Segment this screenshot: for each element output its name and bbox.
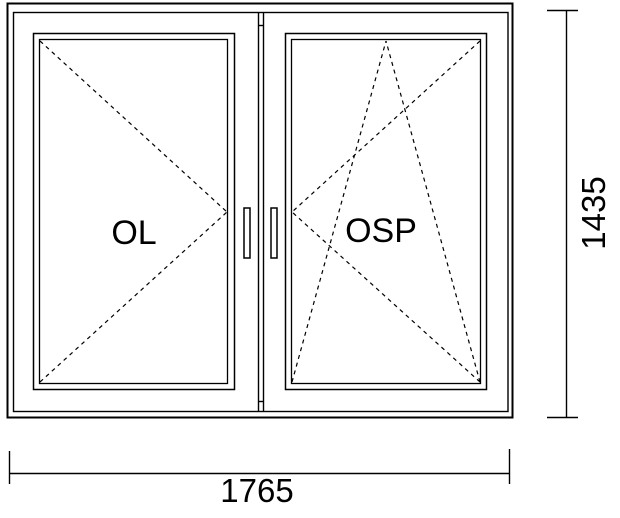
height-dimension-value: 1435 (575, 176, 612, 249)
right-sash-handle (271, 208, 277, 258)
window-drawing-canvas: OL OSP 1765 (0, 0, 620, 518)
right-panel-label: OSP (345, 212, 417, 250)
left-sash-glass-line (40, 40, 228, 384)
panel-left-sash[interactable]: OL (34, 34, 235, 390)
turn-left-opening-symbol (40, 41, 227, 382)
left-panel-label: OL (111, 214, 156, 252)
window-frame (8, 4, 513, 418)
frame-inner-line (14, 13, 509, 412)
window-elevation-svg: OL OSP 1765 (0, 0, 620, 518)
left-sash-handle (244, 208, 250, 258)
left-sash-outer-line (34, 34, 235, 390)
frame-outer-line (8, 4, 513, 418)
dimension-width: 1765 (10, 449, 510, 509)
dimension-height: 1435 (547, 11, 612, 418)
mullion (259, 13, 264, 412)
width-dimension-value: 1765 (220, 472, 293, 509)
panel-right-sash[interactable]: OSP (286, 34, 487, 390)
